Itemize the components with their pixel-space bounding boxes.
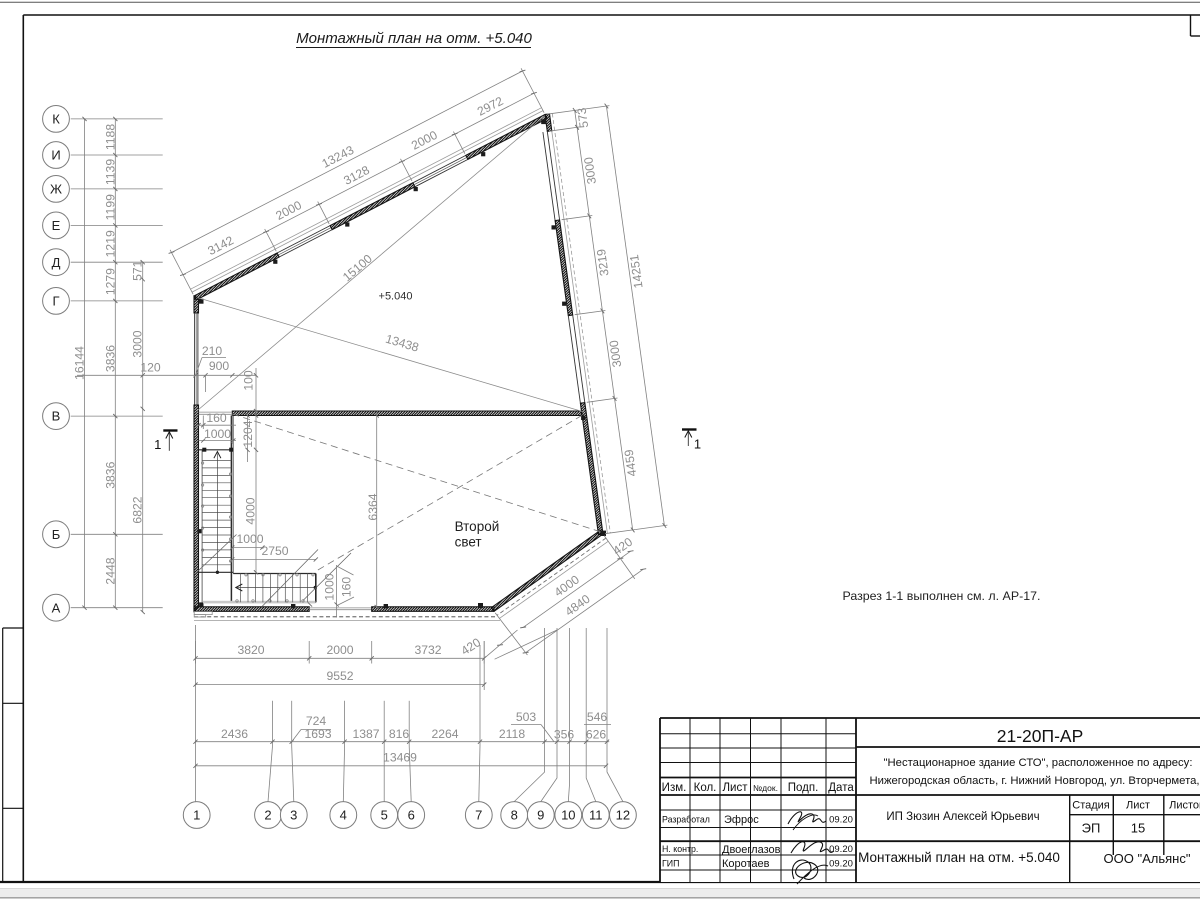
svg-text:1000: 1000 — [204, 427, 231, 441]
svg-text:573: 573 — [574, 107, 591, 129]
svg-text:Кол.: Кол. — [694, 782, 717, 794]
svg-text:09.20: 09.20 — [829, 859, 853, 870]
svg-text:1219: 1219 — [103, 230, 117, 257]
svg-text:900: 900 — [209, 359, 230, 373]
svg-text:Ж: Ж — [50, 182, 62, 197]
svg-text:2118: 2118 — [499, 727, 525, 741]
svg-text:4: 4 — [340, 808, 347, 823]
svg-text:1139: 1139 — [103, 159, 117, 185]
svg-text:7: 7 — [475, 808, 482, 823]
svg-text:1: 1 — [154, 437, 161, 452]
svg-text:свет: свет — [455, 535, 482, 550]
svg-text:Нижегородская область, г. Нижн: Нижегородская область, г. Нижний Новгоро… — [869, 775, 1200, 787]
svg-text:21-20П-АР: 21-20П-АР — [997, 726, 1084, 746]
svg-text:3836: 3836 — [103, 461, 117, 488]
svg-text:Монтажный план на отм. +5.040: Монтажный план на отм. +5.040 — [296, 30, 532, 47]
svg-text:160: 160 — [206, 411, 227, 425]
svg-text:6364: 6364 — [366, 493, 380, 520]
svg-text:8: 8 — [511, 808, 518, 823]
svg-text:Д: Д — [52, 255, 61, 270]
svg-text:ИП Зюзин Алексей Юрьевич: ИП Зюзин Алексей Юрьевич — [886, 811, 1039, 823]
svg-text:6: 6 — [408, 808, 415, 823]
svg-text:12: 12 — [616, 808, 630, 823]
svg-text:9: 9 — [537, 808, 544, 823]
svg-text:3820: 3820 — [237, 643, 264, 657]
svg-text:Коротаев: Коротаев — [722, 858, 770, 870]
svg-text:1188: 1188 — [103, 124, 117, 150]
svg-text:Эфрос: Эфрос — [724, 814, 759, 826]
svg-text:В: В — [52, 409, 61, 424]
svg-text:Лист: Лист — [1126, 800, 1150, 812]
svg-text:1: 1 — [193, 808, 200, 823]
svg-text:Второй: Второй — [455, 519, 500, 534]
svg-text:Г: Г — [52, 294, 59, 309]
svg-text:3: 3 — [290, 808, 297, 823]
svg-text:2: 2 — [264, 808, 271, 823]
svg-text:571: 571 — [131, 260, 145, 281]
svg-text:К: К — [52, 112, 60, 127]
svg-text:09.20: 09.20 — [829, 844, 853, 855]
svg-text:2750: 2750 — [261, 544, 288, 558]
svg-text:6822: 6822 — [131, 496, 145, 523]
svg-text:626: 626 — [586, 728, 607, 742]
svg-text:100: 100 — [241, 370, 255, 391]
svg-text:"Нестационарное здание СТО", р: "Нестационарное здание СТО", расположенн… — [884, 757, 1193, 769]
svg-text:+5.040: +5.040 — [379, 291, 413, 303]
svg-text:210: 210 — [202, 344, 223, 358]
svg-text:Н. контр.: Н. контр. — [662, 844, 698, 854]
svg-text:Разрез 1-1 выполнен см. л. АР-: Разрез 1-1 выполнен см. л. АР-17. — [843, 589, 1041, 603]
svg-text:160: 160 — [340, 577, 354, 598]
svg-text:546: 546 — [587, 710, 608, 724]
svg-text:Листов: Листов — [1169, 800, 1200, 812]
svg-text:ГИП: ГИП — [662, 859, 679, 869]
svg-text:2448: 2448 — [103, 557, 117, 584]
svg-text:Б: Б — [52, 527, 61, 542]
svg-text:2264: 2264 — [431, 727, 458, 741]
svg-text:Двоеглазов: Двоеглазов — [722, 844, 781, 856]
svg-text:И: И — [51, 148, 60, 163]
svg-text:9552: 9552 — [326, 669, 353, 683]
svg-text:1000: 1000 — [323, 573, 337, 600]
svg-text:11: 11 — [589, 808, 603, 823]
svg-text:Разработал: Разработал — [662, 815, 710, 825]
svg-text:10: 10 — [561, 808, 575, 823]
svg-text:16144: 16144 — [73, 346, 87, 380]
svg-text:120: 120 — [140, 361, 161, 375]
svg-text:2000: 2000 — [326, 643, 353, 657]
svg-text:А: А — [52, 600, 61, 615]
svg-text:Дата: Дата — [828, 782, 854, 794]
svg-text:ЭП: ЭП — [1082, 821, 1101, 836]
svg-text:3732: 3732 — [414, 643, 441, 657]
svg-text:1204: 1204 — [241, 420, 255, 447]
svg-text:Лист: Лист — [723, 782, 749, 794]
svg-text:13469: 13469 — [383, 751, 417, 765]
svg-text:5: 5 — [381, 808, 388, 823]
svg-text:3836: 3836 — [103, 345, 117, 372]
svg-text:3000: 3000 — [131, 330, 145, 357]
svg-text:816: 816 — [389, 727, 410, 741]
svg-text:1: 1 — [694, 437, 701, 452]
svg-text:Е: Е — [52, 218, 61, 233]
svg-text:15: 15 — [1131, 821, 1145, 836]
svg-text:ООО "Альянс": ООО "Альянс" — [1104, 851, 1191, 866]
svg-text:Изм.: Изм. — [662, 782, 687, 794]
svg-text:№док.: №док. — [753, 783, 778, 793]
svg-text:Стадия: Стадия — [1072, 800, 1110, 812]
svg-text:1199: 1199 — [103, 194, 117, 220]
svg-text:503: 503 — [516, 710, 537, 724]
svg-text:Монтажный план на отм. +5.040: Монтажный план на отм. +5.040 — [858, 850, 1060, 865]
svg-text:2436: 2436 — [221, 727, 248, 741]
svg-text:356: 356 — [554, 728, 575, 742]
svg-text:4000: 4000 — [243, 497, 257, 524]
svg-text:09.20: 09.20 — [829, 815, 853, 826]
svg-text:1387: 1387 — [352, 727, 379, 741]
svg-text:1000: 1000 — [236, 532, 263, 546]
svg-text:724: 724 — [306, 714, 327, 728]
svg-text:Подп.: Подп. — [788, 782, 819, 794]
svg-text:1279: 1279 — [103, 268, 117, 295]
